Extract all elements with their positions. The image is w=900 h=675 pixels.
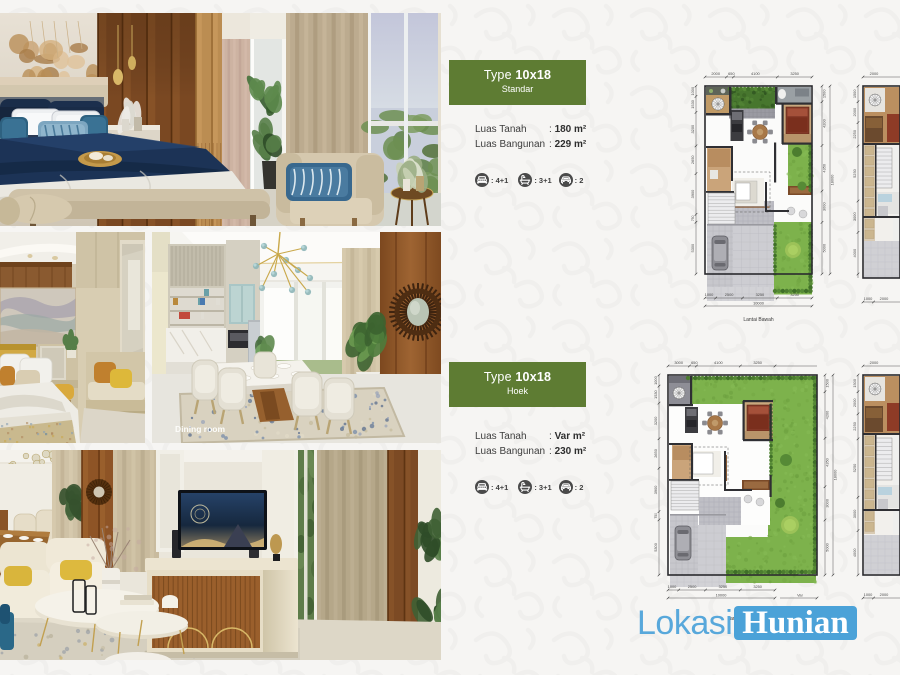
svg-text:3250: 3250 [753,584,762,589]
svg-text:5000: 5000 [825,542,830,551]
svg-text:3900: 3900 [653,485,658,494]
svg-text:4350: 4350 [825,457,830,466]
svg-text:3000: 3000 [674,360,683,365]
svg-text:3200: 3200 [690,124,695,133]
svg-text:2500: 2500 [688,584,697,589]
svg-text:Dining room: Dining room [175,424,225,434]
svg-text:4200: 4200 [822,118,827,127]
svg-text:2000: 2000 [880,592,889,597]
svg-text:3000: 3000 [852,212,857,221]
svg-text:5300: 5300 [653,542,658,551]
svg-text:3000: 3000 [822,202,827,211]
svg-text:1500: 1500 [852,89,857,98]
svg-text:4000: 4000 [852,548,857,557]
svg-text:750: 750 [691,215,695,221]
svg-text:2000: 2000 [880,296,889,301]
svg-text:Var: Var [797,593,803,598]
svg-text:3250: 3250 [753,360,762,365]
svg-text:1000: 1000 [653,375,658,384]
svg-text:2000: 2000 [711,71,720,76]
svg-text:1530: 1530 [653,389,658,398]
svg-text:2250: 2250 [852,129,857,138]
svg-text:2650: 2650 [653,448,658,457]
svg-text:3000: 3000 [852,509,857,518]
svg-text:1000: 1000 [864,296,873,301]
svg-text:5250: 5250 [852,463,857,472]
svg-text:3250: 3250 [790,71,799,76]
svg-text:3900: 3900 [690,189,695,198]
svg-text:3250: 3250 [790,292,799,297]
svg-text:1530: 1530 [690,99,695,108]
svg-text:10000: 10000 [753,301,765,306]
svg-text:5000: 5000 [822,243,827,252]
svg-text:10000: 10000 [716,593,728,598]
svg-text:1000: 1000 [668,584,677,589]
svg-text:2250: 2250 [852,421,857,430]
svg-text:Lantai Bawah: Lantai Bawah [743,317,774,323]
svg-text:4200: 4200 [825,410,830,419]
svg-text:4100: 4100 [714,360,723,365]
svg-text:2000: 2000 [852,107,857,116]
svg-text:1000: 1000 [690,86,695,95]
svg-text:2650: 2650 [690,155,695,164]
svg-text:1000: 1000 [864,592,873,597]
svg-text:1500: 1500 [852,378,857,387]
svg-text:18000: 18000 [830,174,835,186]
svg-text:4350: 4350 [822,163,827,172]
svg-text:3250: 3250 [756,292,765,297]
svg-text:1500: 1500 [825,378,830,387]
svg-text:2000: 2000 [870,71,879,76]
svg-text:3000: 3000 [825,498,830,507]
svg-text:5300: 5300 [690,243,695,252]
svg-text:1500: 1500 [822,89,827,98]
svg-text:2000: 2000 [870,360,879,365]
svg-text:650: 650 [728,71,735,76]
svg-text:650: 650 [691,360,698,365]
svg-text:2500: 2500 [725,292,734,297]
svg-text:1000: 1000 [705,292,714,297]
svg-text:3250: 3250 [719,584,728,589]
svg-text:18000: 18000 [833,469,838,481]
svg-text:3200: 3200 [653,416,658,425]
svg-text:4100: 4100 [751,71,760,76]
svg-text:2000: 2000 [852,398,857,407]
svg-text:4000: 4000 [852,248,857,257]
svg-text:5250: 5250 [852,168,857,177]
svg-text:750: 750 [654,513,658,519]
